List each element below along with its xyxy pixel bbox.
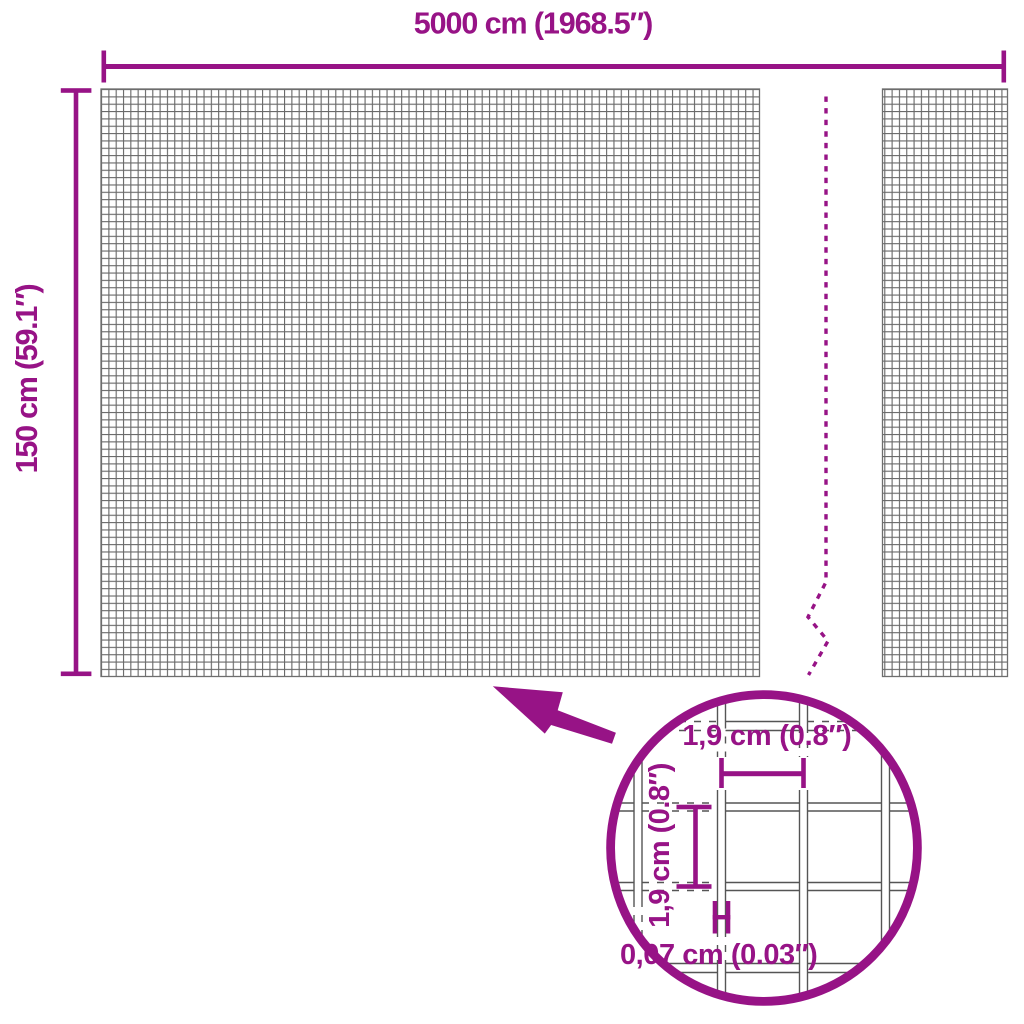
svg-text:1,9 cm (0.8″): 1,9 cm (0.8″) [682,720,851,752]
svg-text:5000 cm (1968.5″): 5000 cm (1968.5″) [414,7,652,41]
svg-text:0,07 cm (0.03″): 0,07 cm (0.03″) [620,939,817,971]
svg-text:1,9 cm (0.8″): 1,9 cm (0.8″) [644,763,676,928]
svg-text:150 cm (59.1″): 150 cm (59.1″) [10,285,44,474]
